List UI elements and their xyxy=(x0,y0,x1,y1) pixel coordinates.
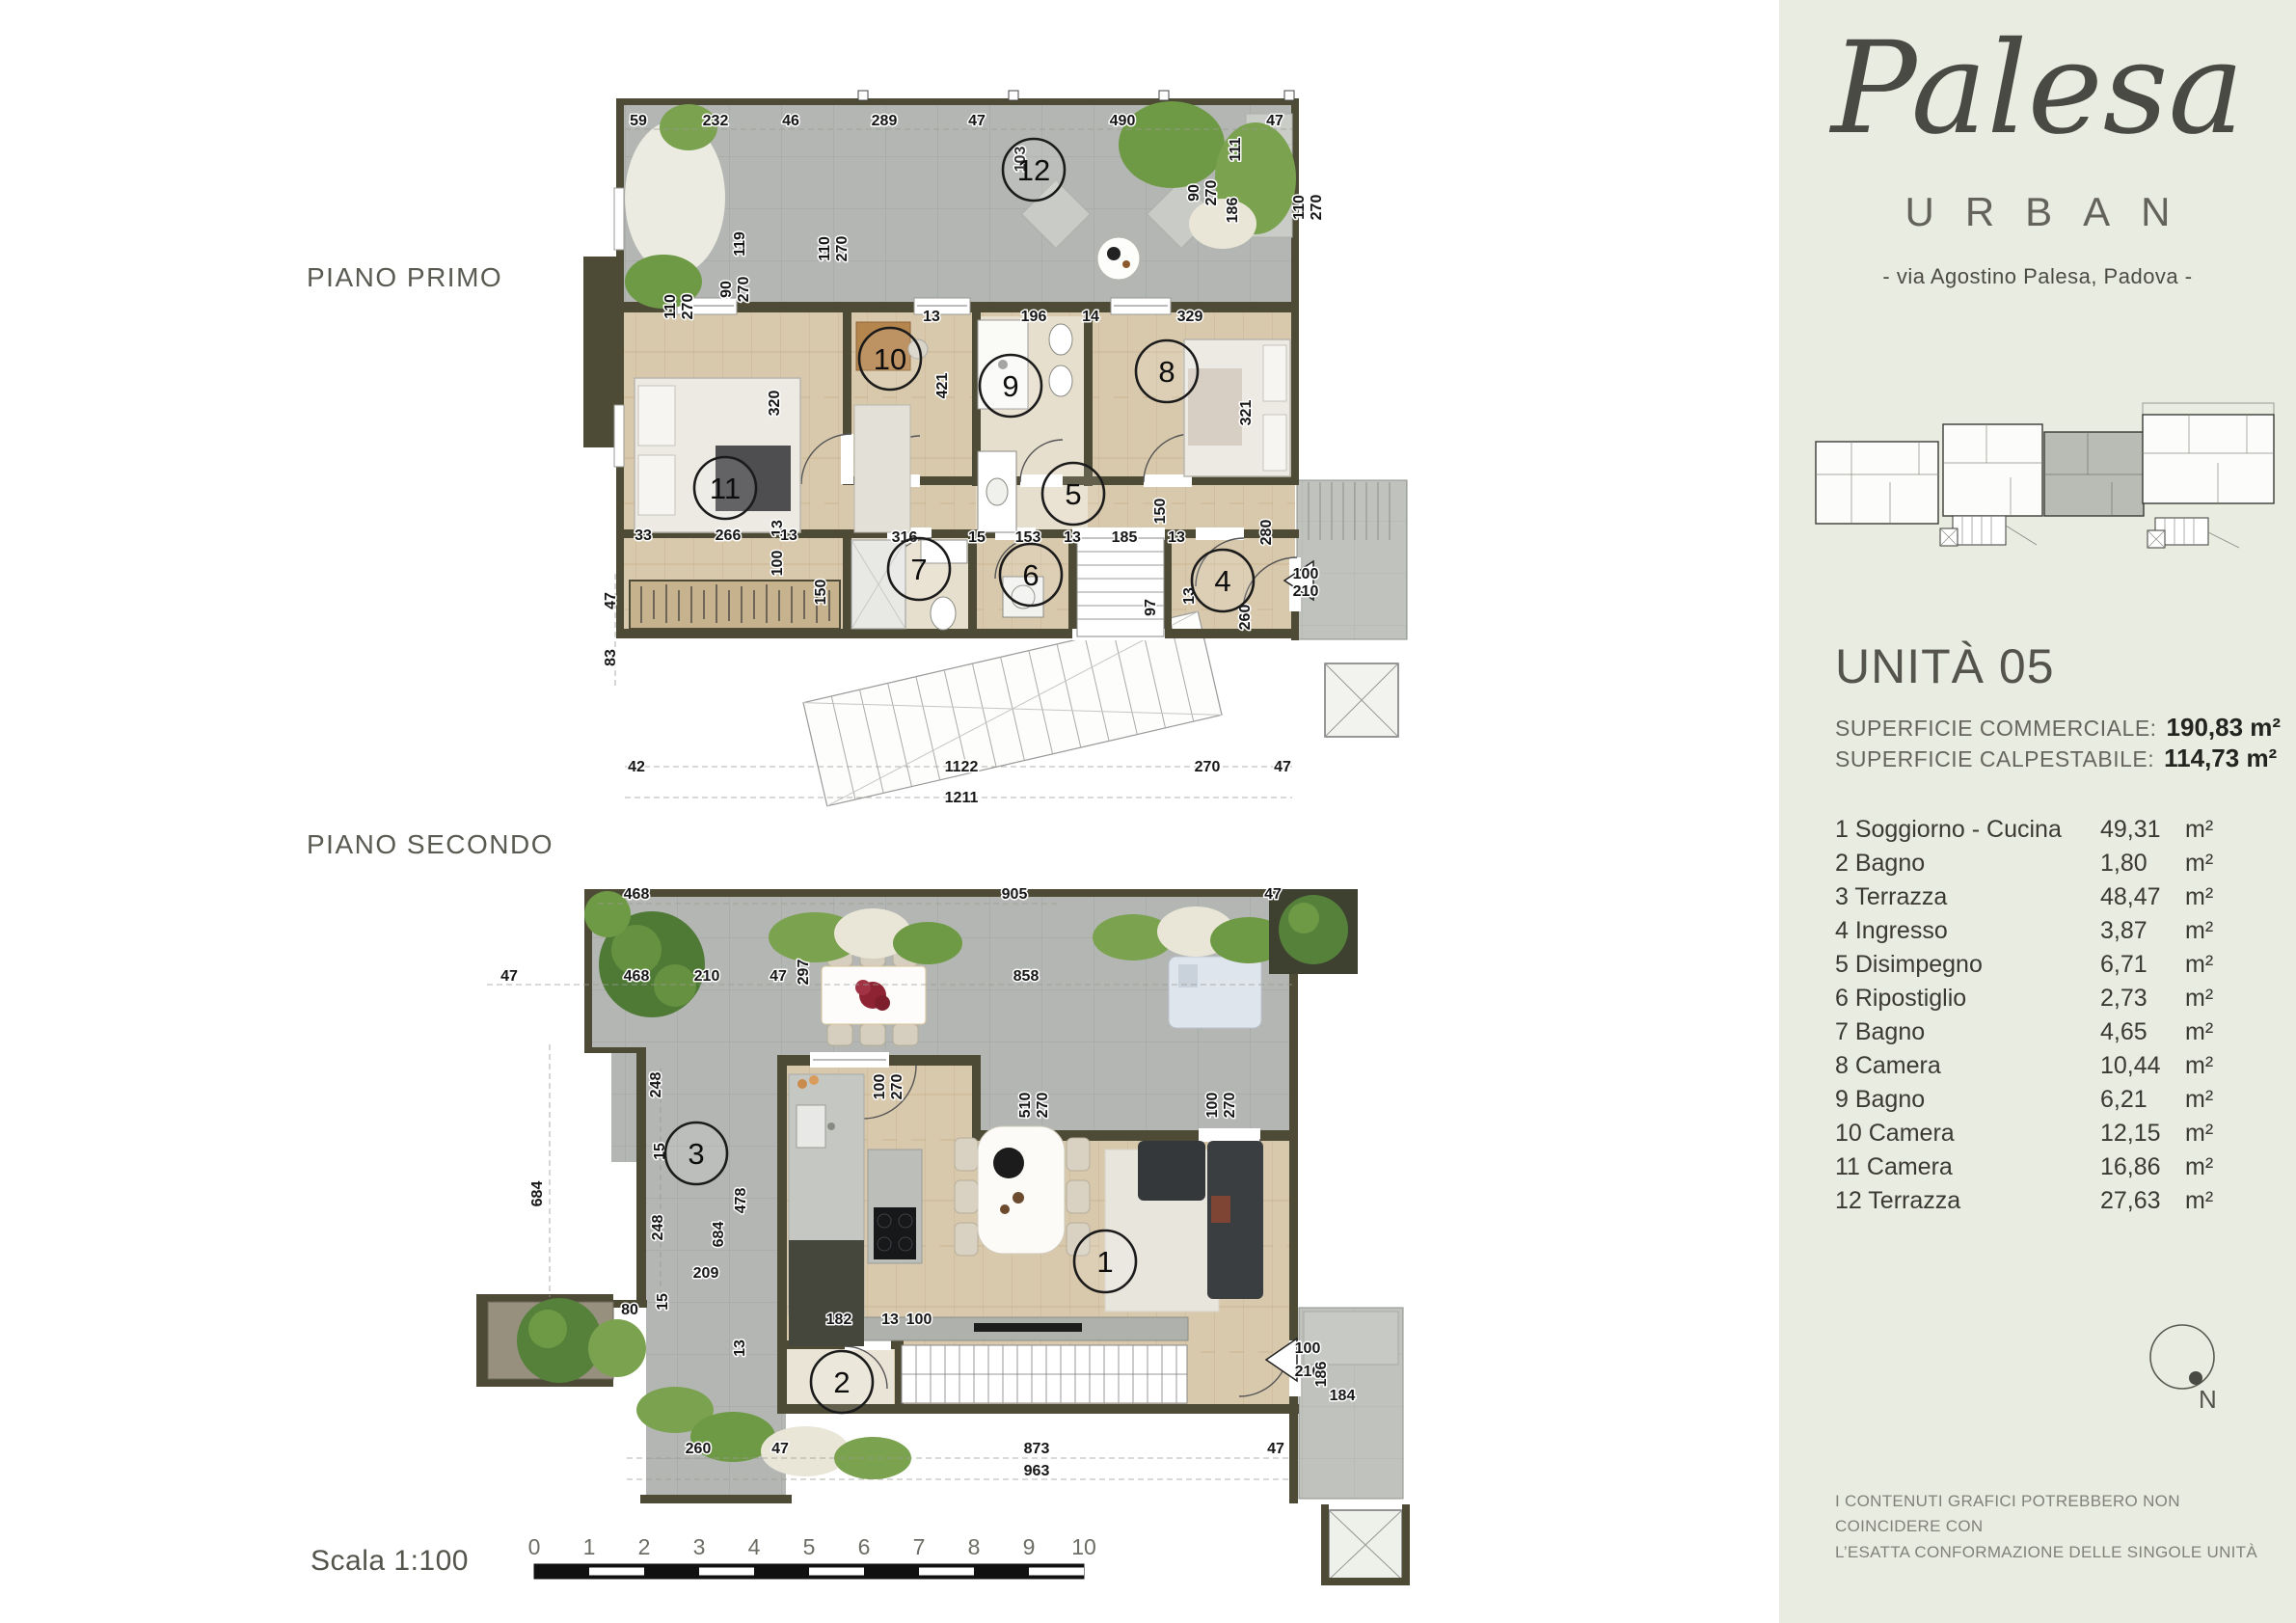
dim-label: 184 xyxy=(1330,1388,1356,1404)
elevator-2 xyxy=(1321,1504,1410,1585)
dim-label: 185 xyxy=(1112,529,1138,546)
room-val: 6,21 xyxy=(2100,1083,2185,1117)
surface-row: SUPERFICIE COMMERCIALE:190,83 m² xyxy=(1835,712,2281,743)
dim-label: 47 xyxy=(968,113,986,129)
surface-value: 114,73 m² xyxy=(2164,744,2277,772)
dim-label: 47 xyxy=(1274,759,1291,775)
room-name: 4 Ingresso xyxy=(1835,914,2100,948)
dim-label: 153 xyxy=(1015,529,1041,546)
dim-label: 905 xyxy=(1002,886,1028,903)
room-val: 6,71 xyxy=(2100,948,2185,982)
piano-secondo-annotations: 4689054747468210472978586842481524815209… xyxy=(500,886,1355,1479)
room-number: 7 xyxy=(910,553,927,586)
dim-label: 150 xyxy=(813,580,829,606)
furniture xyxy=(630,320,1290,630)
dim-label: 42 xyxy=(628,759,645,775)
surface-value: 190,83 m² xyxy=(2167,713,2282,742)
room-number: 3 xyxy=(688,1137,704,1171)
dim-label: 209 xyxy=(693,1265,719,1282)
dim-label: 270 xyxy=(1222,1093,1238,1119)
room-number-circle xyxy=(1192,550,1254,611)
room-val: 10,44 xyxy=(2100,1049,2185,1083)
room-number-circle xyxy=(888,538,950,600)
dim-label: 13 xyxy=(732,1339,748,1357)
room-unit: m² xyxy=(2185,1117,2233,1150)
room-unit: m² xyxy=(2185,1083,2233,1117)
entry-door-arrow-2 xyxy=(1266,1339,1297,1381)
terrace-decor xyxy=(625,91,1296,309)
dim-label: 97 xyxy=(1143,599,1159,616)
room-number-circle xyxy=(1136,340,1198,402)
planter-box xyxy=(488,1302,613,1379)
dim-label: 297 xyxy=(796,960,812,986)
piano-primo-floorplan xyxy=(583,91,1407,806)
dim-label: 13 xyxy=(1181,587,1198,605)
room-row: 6 Ripostiglio2,73m² xyxy=(1835,982,2233,1015)
piano-secondo-floorplan xyxy=(476,889,1410,1585)
dim-label: 182 xyxy=(826,1312,852,1328)
room-row: 10 Camera12,15m² xyxy=(1835,1117,2233,1150)
room-val: 1,80 xyxy=(2100,847,2185,880)
dim-label: 684 xyxy=(711,1222,727,1248)
scale-tick: 7 xyxy=(913,1534,926,1559)
room-number-circle xyxy=(811,1351,873,1413)
scale-label: Scala 1:100 xyxy=(311,1545,469,1578)
room-number-circle xyxy=(1003,139,1065,201)
dim-label: 320 xyxy=(767,391,783,417)
room-row: 8 Camera10,44m² xyxy=(1835,1049,2233,1083)
room-number: 5 xyxy=(1065,477,1081,511)
walls-2 xyxy=(476,889,1299,1503)
dim-label: 270 xyxy=(889,1074,905,1100)
living-furniture xyxy=(955,1126,1263,1312)
dim-label: 260 xyxy=(1237,605,1254,631)
bagno-2-floor xyxy=(786,1347,894,1408)
room-unit: m² xyxy=(2185,948,2233,982)
living-floor xyxy=(786,1064,1293,1410)
bagno-9-floor xyxy=(976,316,1088,536)
room-unit: m² xyxy=(2185,813,2233,847)
room-val: 2,73 xyxy=(2100,982,2185,1015)
dim-label: 270 xyxy=(1195,759,1221,775)
room-name: 2 Bagno xyxy=(1835,847,2100,880)
dim-label: 83 xyxy=(603,649,619,666)
room-unit: m² xyxy=(2185,1150,2233,1184)
scale-tick: 8 xyxy=(968,1534,981,1559)
internal-stair-2 xyxy=(847,1317,1188,1403)
room-unit: m² xyxy=(2185,1015,2233,1049)
dim-label: 873 xyxy=(1024,1441,1050,1457)
dim-label: 90 xyxy=(1186,184,1202,202)
dim-label: 110 xyxy=(817,236,833,261)
dim-label: 13 xyxy=(780,527,797,544)
external-stair xyxy=(803,611,1222,806)
dim-label: 100 xyxy=(1204,1093,1221,1119)
room-area-table: 1 Soggiorno - Cucina49,31m²2 Bagno1,80m²… xyxy=(1835,813,2233,1218)
surface-label: SUPERFICIE COMMERCIALE: xyxy=(1835,716,2157,741)
disclaimer-line: L’ESATTA CONFORMAZIONE DELLE SINGOLE UNI… xyxy=(1835,1540,2269,1565)
surface-summary: SUPERFICIE COMMERCIALE:190,83 m²SUPERFIC… xyxy=(1835,712,2281,773)
room-row: 3 Terrazza48,47m² xyxy=(1835,880,2233,914)
dim-label: 266 xyxy=(716,527,742,544)
room-row: 1 Soggiorno - Cucina49,31m² xyxy=(1835,813,2233,847)
dim-label: 329 xyxy=(1177,309,1203,325)
scale-tick: 1 xyxy=(583,1534,596,1559)
room-row: 4 Ingresso3,87m² xyxy=(1835,914,2233,948)
dim-label: 270 xyxy=(1035,1093,1051,1119)
unit-title: UNITÀ 05 xyxy=(1835,638,2055,694)
room-name: 6 Ripostiglio xyxy=(1835,982,2100,1015)
dim-label: 270 xyxy=(680,294,696,320)
windows-doors-2 xyxy=(810,1052,1301,1396)
room-row: 12 Terrazza27,63m² xyxy=(1835,1184,2233,1218)
dim-label: 111 xyxy=(1228,137,1244,161)
scale-segment xyxy=(589,1568,644,1576)
windows-doors xyxy=(614,188,1313,640)
floorplan-sheet: Palesa URBAN - via Agostino Palesa, Pado… xyxy=(0,0,2296,1623)
dim-label: 13 xyxy=(923,309,940,325)
dim-label: 270 xyxy=(1203,180,1220,206)
dim-label: 110 xyxy=(1291,195,1308,220)
dim-label: 46 xyxy=(782,113,799,129)
dim-label: 47 xyxy=(770,968,787,985)
dim-label: 248 xyxy=(650,1215,666,1241)
dim-label: 248 xyxy=(648,1072,664,1098)
dim-label: 100 xyxy=(770,551,786,577)
stair-hall xyxy=(1297,480,1407,639)
room-name: 3 Terrazza xyxy=(1835,880,2100,914)
room-unit: m² xyxy=(2185,1184,2233,1218)
kitchen xyxy=(789,1074,922,1346)
room-unit: m² xyxy=(2185,982,2233,1015)
dim-label: 316 xyxy=(892,529,918,546)
dim-label: 232 xyxy=(703,113,729,129)
dim-label: 59 xyxy=(630,113,647,129)
dim-label: 510 xyxy=(1017,1093,1034,1119)
dim-label: 13 xyxy=(770,520,786,537)
dim-label: 186 xyxy=(1225,198,1241,224)
terrace-furniture xyxy=(822,945,1261,1045)
room-row: 9 Bagno6,21m² xyxy=(1835,1083,2233,1117)
room-val: 48,47 xyxy=(2100,880,2185,914)
room-row: 11 Camera16,86m² xyxy=(1835,1150,2233,1184)
dim-label: 270 xyxy=(834,236,851,262)
room-val: 16,86 xyxy=(2100,1150,2185,1184)
dim-label: 100 xyxy=(906,1312,932,1328)
dim-label: 15 xyxy=(655,1293,671,1311)
room-name: 7 Bagno xyxy=(1835,1015,2100,1049)
scale-segment xyxy=(809,1568,864,1576)
dim-label: 963 xyxy=(1024,1463,1050,1479)
dim-label: 119 xyxy=(732,231,748,257)
room-name: 9 Bagno xyxy=(1835,1083,2100,1117)
internal-stair xyxy=(1077,538,1164,636)
dim-label: 289 xyxy=(872,113,898,129)
scale-tick: 4 xyxy=(748,1534,761,1559)
entry-door-arrow xyxy=(1284,561,1313,600)
scale-segment xyxy=(699,1568,754,1576)
room-number-circle xyxy=(1042,463,1104,525)
dim-lines xyxy=(615,129,1292,798)
plants xyxy=(517,889,1358,1479)
piano-primo-annotations: 5923246289474901114710318611990270110270… xyxy=(603,113,1325,806)
dim-label: 110 xyxy=(662,294,679,319)
disclaimer: I CONTENUTI GRAFICI POTREBBERO NON COINC… xyxy=(1835,1489,2269,1565)
dim-label: 13 xyxy=(1064,529,1081,546)
dim-label: 47 xyxy=(1264,886,1282,903)
dim-label: 210 xyxy=(1295,1364,1321,1380)
dim-label: 150 xyxy=(1152,499,1169,525)
dim-label: 196 xyxy=(1021,309,1047,325)
dim-label: 270 xyxy=(736,277,752,303)
dim-label: 47 xyxy=(500,968,518,985)
terrace-3-floor xyxy=(590,895,1293,1501)
room-val: 4,65 xyxy=(2100,1015,2185,1049)
dim-label: 47 xyxy=(603,592,619,609)
room-number-circle xyxy=(665,1123,727,1184)
room-number: 12 xyxy=(1017,153,1050,187)
scale-tick: 3 xyxy=(693,1534,706,1559)
scale-bar: 012345678910 xyxy=(528,1534,1096,1579)
dim-label: 100 xyxy=(872,1074,888,1100)
room-val: 49,31 xyxy=(2100,813,2185,847)
dim-label: 13 xyxy=(881,1312,899,1328)
piano-primo-title: PIANO PRIMO xyxy=(307,262,502,293)
dim-label: 321 xyxy=(1238,400,1255,426)
room-number-circle xyxy=(980,355,1041,417)
dim-label: 100 xyxy=(1295,1340,1321,1357)
dim-lines-2 xyxy=(487,904,1292,1479)
piano-secondo-title: PIANO SECONDO xyxy=(307,829,554,860)
dim-label: 47 xyxy=(1267,1441,1284,1457)
dim-label: 684 xyxy=(529,1181,546,1207)
dim-label: 858 xyxy=(1013,968,1040,985)
dim-label: 468 xyxy=(624,968,650,985)
scale-tick: 2 xyxy=(638,1534,651,1559)
dim-label: 14 xyxy=(1082,309,1099,325)
sidebar: Palesa URBAN - via Agostino Palesa, Pado… xyxy=(1779,0,2296,1623)
walls xyxy=(583,98,1299,640)
dim-label: 478 xyxy=(733,1188,749,1214)
dim-label: 210 xyxy=(694,968,720,985)
elevator xyxy=(1325,663,1398,737)
surface-row: SUPERFICIE CALPESTABILE:114,73 m² xyxy=(1835,743,2281,773)
dim-label: 90 xyxy=(718,281,735,298)
room-unit: m² xyxy=(2185,1049,2233,1083)
room-name: 11 Camera xyxy=(1835,1150,2100,1184)
room-number: 1 xyxy=(1096,1245,1113,1279)
scale-tick: 10 xyxy=(1071,1534,1096,1559)
room-number: 6 xyxy=(1022,558,1039,592)
surface-label: SUPERFICIE CALPESTABILE: xyxy=(1835,746,2154,771)
room-row: 2 Bagno1,80m² xyxy=(1835,847,2233,880)
room-name: 1 Soggiorno - Cucina xyxy=(1835,813,2100,847)
room-number: 8 xyxy=(1158,355,1175,389)
room-number: 11 xyxy=(710,472,741,505)
dim-label: 103 xyxy=(1013,147,1029,173)
dim-label: 80 xyxy=(621,1302,638,1318)
room-number-circle xyxy=(1000,544,1062,606)
room-unit: m² xyxy=(2185,847,2233,880)
room-name: 12 Terrazza xyxy=(1835,1184,2100,1218)
dim-label: 15 xyxy=(968,529,986,546)
dim-label: 1211 xyxy=(945,790,979,806)
scale-tick: 5 xyxy=(803,1534,816,1559)
dim-label: 421 xyxy=(934,373,951,399)
scale-tick: 0 xyxy=(528,1534,541,1559)
dim-label: 1122 xyxy=(945,759,979,775)
room-number-circle xyxy=(1074,1231,1136,1292)
scale-segment xyxy=(919,1568,974,1576)
brand-logo: Palesa xyxy=(1779,19,2296,159)
room-name: 8 Camera xyxy=(1835,1049,2100,1083)
brand-address: - via Agostino Palesa, Padova - xyxy=(1779,264,2296,289)
room-number: 10 xyxy=(874,342,906,376)
room-name: 10 Camera xyxy=(1835,1117,2100,1150)
bagno-7-floor xyxy=(848,536,968,633)
terrace-12-floor xyxy=(622,104,1295,309)
room-val: 3,87 xyxy=(2100,914,2185,948)
room-number: 2 xyxy=(833,1366,850,1399)
room-row: 5 Disimpegno6,71m² xyxy=(1835,948,2233,982)
scale-tick: 6 xyxy=(858,1534,871,1559)
dim-label: 47 xyxy=(771,1441,789,1457)
room-val: 12,15 xyxy=(2100,1117,2185,1150)
scale-tick: 9 xyxy=(1023,1534,1036,1559)
dim-label: 186 xyxy=(1313,1362,1330,1388)
interior-floor xyxy=(622,309,1295,636)
disclaimer-line: I CONTENUTI GRAFICI POTREBBERO NON COINC… xyxy=(1835,1489,2269,1540)
dim-label: 33 xyxy=(635,527,652,544)
room-unit: m² xyxy=(2185,914,2233,948)
dim-label: 100 xyxy=(1293,566,1319,582)
dim-label: 47 xyxy=(1266,113,1283,129)
dim-label: 260 xyxy=(686,1441,712,1457)
dim-label: 15 xyxy=(652,1143,668,1160)
dim-label: 13 xyxy=(1168,529,1185,546)
room-number: 9 xyxy=(1002,369,1018,403)
dim-label: 468 xyxy=(624,886,650,903)
dim-label: 280 xyxy=(1258,520,1275,546)
room-name: 5 Disimpegno xyxy=(1835,948,2100,982)
room-number-circle xyxy=(694,457,756,519)
dim-label: 490 xyxy=(1110,113,1136,129)
scale-segment xyxy=(1029,1568,1084,1576)
dim-label: 270 xyxy=(1309,195,1325,221)
room-number-circle xyxy=(859,328,921,390)
dim-label: 210 xyxy=(1293,583,1319,600)
room-unit: m² xyxy=(2185,880,2233,914)
room-number: 4 xyxy=(1214,564,1230,598)
room-row: 7 Bagno4,65m² xyxy=(1835,1015,2233,1049)
brand-sub: URBAN xyxy=(1779,189,2296,235)
room-val: 27,63 xyxy=(2100,1184,2185,1218)
compass-north-label: N xyxy=(2199,1385,2217,1415)
stair-hall-2 xyxy=(1299,1308,1403,1499)
